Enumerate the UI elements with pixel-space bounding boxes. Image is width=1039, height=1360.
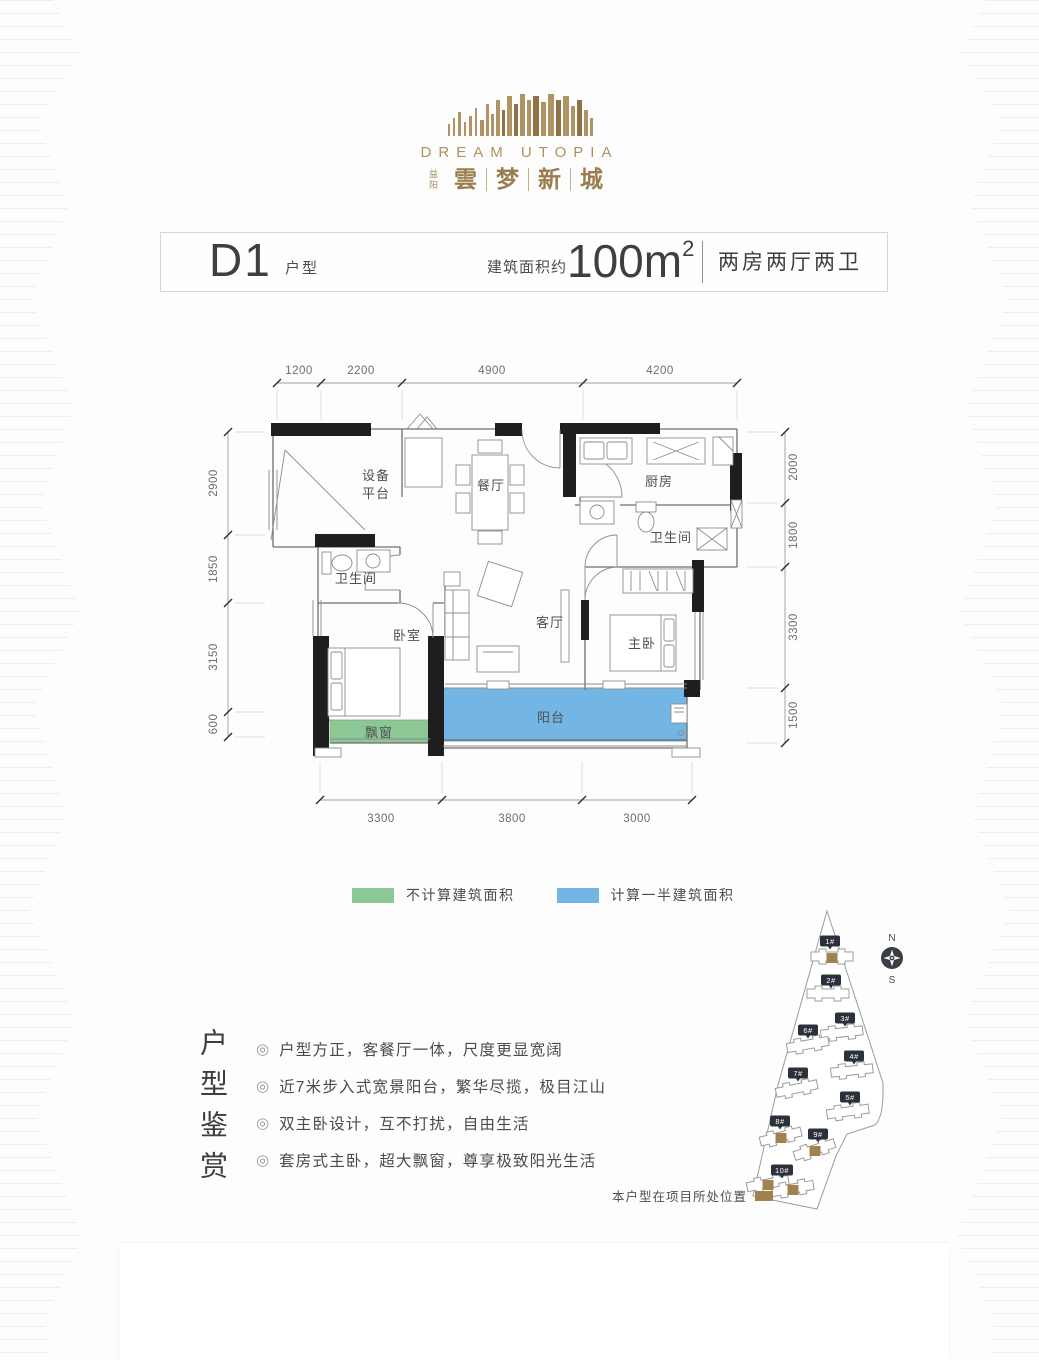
dim-bottom-1: 3800 [498,813,526,825]
dim-left-3: 600 [208,714,220,735]
unit-title-bar: D1 户型 建筑面积约 100m2 两房两厅两卫 [160,232,888,292]
legend-item-no-area: 不计算建筑面积 [352,885,515,905]
legend-item-half-area: 计算一半建筑面积 [557,885,735,905]
location-caption-text: 本户型在项目所处位置 [612,1186,747,1205]
bullet-icon: ◎ [256,1114,269,1132]
brand-logo: DREAM UTOPIA 益阳 雲 梦 新 城 [0,92,1039,191]
building-badge-label: 5# [845,1093,855,1102]
building-badge-label: 4# [849,1052,859,1061]
legend-label: 不计算建筑面积 [406,885,515,905]
brand-char: 新 [528,168,570,191]
equipment-platform-detail [271,438,442,540]
feature-text: 套房式主卧，超大飘窗，尊享极致阳光生活 [279,1149,596,1171]
building-badge-label: 2# [826,976,836,985]
floorplan-poster: DREAM UTOPIA 益阳 雲 梦 新 城 D1 户型 建筑面积约 100m… [0,0,1039,1360]
left-contour-decoration [0,0,86,1360]
feature-item: ◎ 近7米步入式宽景阳台，繁华尽揽，极目江山 [256,1067,606,1104]
bullet-icon: ◎ [256,1040,269,1058]
bullet-icon: ◎ [256,1151,269,1169]
feature-text: 双主卧设计，互不打扰，自由生活 [279,1112,530,1134]
room-label-bath-master: 卫生间 [335,571,377,586]
dim-right-0: 2000 [788,453,800,481]
rooms-summary: 两房两厅两卫 [718,246,862,276]
title-divider [702,241,703,283]
room-label-bath-guest: 卫生间 [650,530,692,545]
building-badge-label: 8# [775,1117,785,1126]
skyline-bars-icon [445,92,595,138]
features-list: ◎ 户型方正，客餐厅一体，尺度更显宽阔 ◎ 近7米步入式宽景阳台，繁华尽揽，极目… [256,1030,606,1178]
dimensions-bottom: 3300 3800 3000 [316,762,696,825]
brand-city: 益阳 [427,169,440,191]
room-label-equipment-1: 设备 [362,468,390,483]
floor-plan-drawing: 设备 平台 餐厅 厨房 卫生间 卫生间 卧室 客厅 主卧 阳台 飘窗 1200 … [195,350,807,850]
dim-left-0: 2900 [208,469,220,497]
legend-swatch-green [352,888,394,903]
area-value: 100m2 [567,238,694,284]
building-badge-label: 3# [840,1014,850,1023]
unit-code: D1 [209,237,272,283]
feature-text: 户型方正，客餐厅一体，尺度更显宽阔 [279,1038,563,1060]
building-badge-label: 6# [803,1026,813,1035]
location-caption: 本户型在项目所处位置 [612,1186,773,1205]
dim-left-2: 3150 [208,643,220,671]
feature-text: 近7米步入式宽景阳台，繁华尽揽，极目江山 [279,1075,606,1097]
features-title: 户型鉴赏 [192,1028,232,1192]
dimensions-left: 2900 1850 3150 600 [208,428,265,741]
dim-right-1: 1800 [788,521,800,549]
brand-name-en: DREAM UTOPIA [0,144,1039,161]
unit-code-suffix: 户型 [285,257,319,278]
dim-top-2: 4900 [478,365,506,377]
room-label-bedroom: 卧室 [393,628,421,643]
dim-top-1: 2200 [347,365,375,377]
building-badge-label: 9# [813,1130,823,1139]
feature-item: ◎ 双主卧设计，互不打扰，自由生活 [256,1104,606,1141]
building-badge-label: 7# [793,1069,803,1078]
location-marker-swatch [755,1191,773,1201]
room-label-bay-window: 飘窗 [365,725,393,740]
dimensions-right: 2000 1800 3300 1500 [747,428,800,747]
area-legend: 不计算建筑面积 计算一半建筑面积 [352,885,735,905]
compass-north-label: N [888,933,895,944]
dim-right-2: 3300 [788,613,800,641]
feature-item: ◎ 户型方正，客餐厅一体，尺度更显宽阔 [256,1030,606,1067]
room-label-equipment-2: 平台 [362,486,390,501]
bullet-icon: ◎ [256,1077,269,1095]
floor-plan: 设备 平台 餐厅 厨房 卫生间 卫生间 卧室 客厅 主卧 阳台 飘窗 1200 … [195,350,807,850]
room-label-living: 客厅 [536,615,564,630]
feature-item: ◎ 套房式主卧，超大飘窗，尊享极致阳光生活 [256,1141,606,1178]
area-prefix: 建筑面积约 [487,256,567,277]
site-map-drawing: 1# 2# 3# 6# 4# 7# 5# 8# 9# 10# N S [735,903,945,1223]
room-label-kitchen: 厨房 [645,474,673,489]
dim-left-1: 1850 [208,555,220,583]
dim-bottom-2: 3000 [623,813,651,825]
right-contour-decoration [953,0,1039,1360]
compass-icon: N S [881,933,903,986]
dim-bottom-0: 3300 [367,813,395,825]
area-superscript: 2 [682,236,694,261]
room-label-balcony: 阳台 [537,710,565,725]
room-label-dining: 餐厅 [477,478,505,493]
legend-label: 计算一半建筑面积 [611,885,735,905]
brand-name-cn: 益阳 雲 梦 新 城 [0,168,1039,191]
bottom-page-card [120,1243,948,1360]
dim-top-3: 4200 [646,365,674,377]
building-badge-label: 10# [775,1166,789,1175]
compass-south-label: S [889,975,896,986]
brand-char: 城 [570,168,612,191]
dim-top-0: 1200 [285,365,313,377]
dimensions-top: 1200 2200 4900 4200 [273,365,741,420]
building-badge-label: 1# [825,937,835,946]
brand-char: 梦 [486,168,528,191]
brand-char: 雲 [445,168,486,191]
site-map: 1# 2# 3# 6# 4# 7# 5# 8# 9# 10# N S [735,903,945,1223]
room-label-master: 主卧 [628,636,656,651]
dim-right-3: 1500 [788,701,800,729]
legend-swatch-blue [557,888,599,903]
